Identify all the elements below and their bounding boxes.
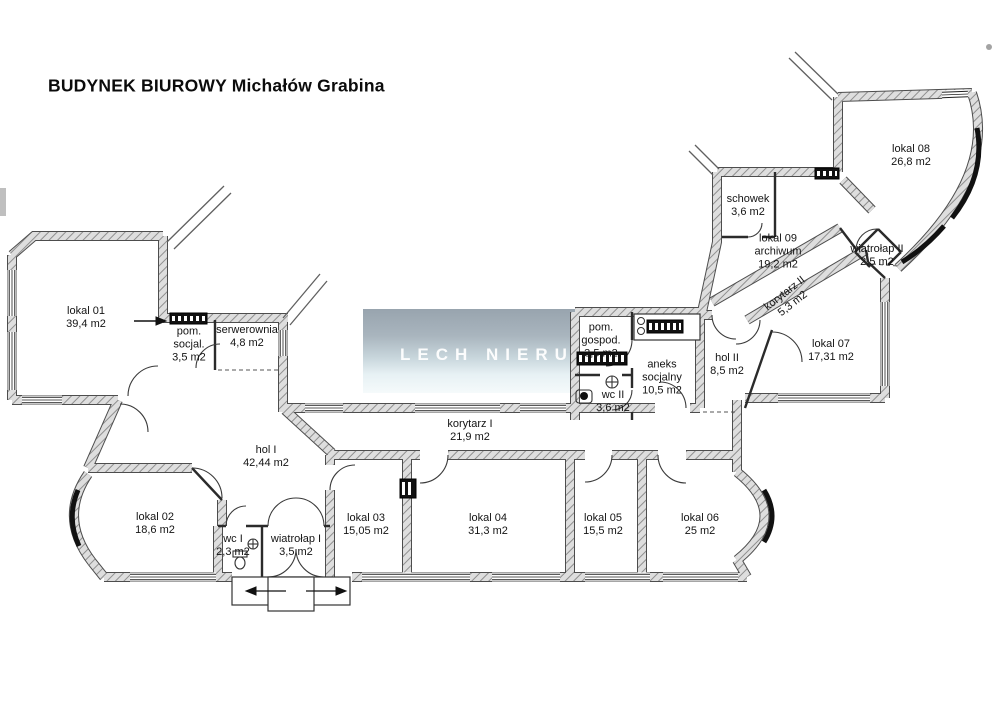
room-label-lokal-09: lokal 09 archiwum19,2 m2 [746,233,810,272]
room-label-lokal-06: lokal 0625 m2 [681,512,719,538]
sink-icon-wc2 [606,376,618,388]
vent-grill [170,313,207,324]
room-label-lokal-07: lokal 0717,31 m2 [808,338,854,364]
room-label-hol-2: hol II8,5 m2 [710,352,744,378]
vent-grill [647,320,683,333]
room-label-hol-1: hol I42,44 m2 [243,444,289,470]
room-label-aneks-socjalny: aneks socjalny10,5 m2 [633,359,691,398]
room-label-wc-1: wc I2,3 m2 [213,533,253,559]
room-label-lokal-08: lokal 0826,8 m2 [891,143,931,169]
room-label-pom-socjal: pom. socjal.3,5 m2 [165,326,213,365]
scan-artifact [0,188,6,216]
room-label-wc-2: wc II3,6 m2 [590,389,636,415]
room-label-korytarz-1: korytarz I21,9 m2 [447,418,492,444]
room-label-lokal-05: lokal 0515,5 m2 [583,512,623,538]
room-label-lokal-01: lokal 0139,4 m2 [66,305,106,331]
exterior-walls [12,93,978,577]
page-title: BUDYNEK BIUROWY Michałów Grabina [48,76,385,97]
scan-artifact [986,44,992,50]
room-label-serwerownia: serwerownia4,8 m2 [216,324,278,350]
entrance-steps [232,577,350,611]
room-label-wiatrolap-1: wiatrołap I3,5 m2 [263,533,329,559]
floor-plan-canvas: BUDYNEK BIUROWY Michałów Grabina LECH NI… [0,0,999,703]
room-label-pom-gospod: pom. gospod.3,5 m2 [575,322,627,361]
room-label-wiatrolap-2: wiatrołap II2,5 m2 [841,243,913,269]
room-label-lokal-03: lokal 0315,05 m2 [343,512,389,538]
room-label-lokal-02: lokal 0218,6 m2 [135,511,175,537]
room-label-lokal-04: lokal 0431,3 m2 [468,512,508,538]
room-label-schowek: schowek3,6 m2 [727,193,770,219]
